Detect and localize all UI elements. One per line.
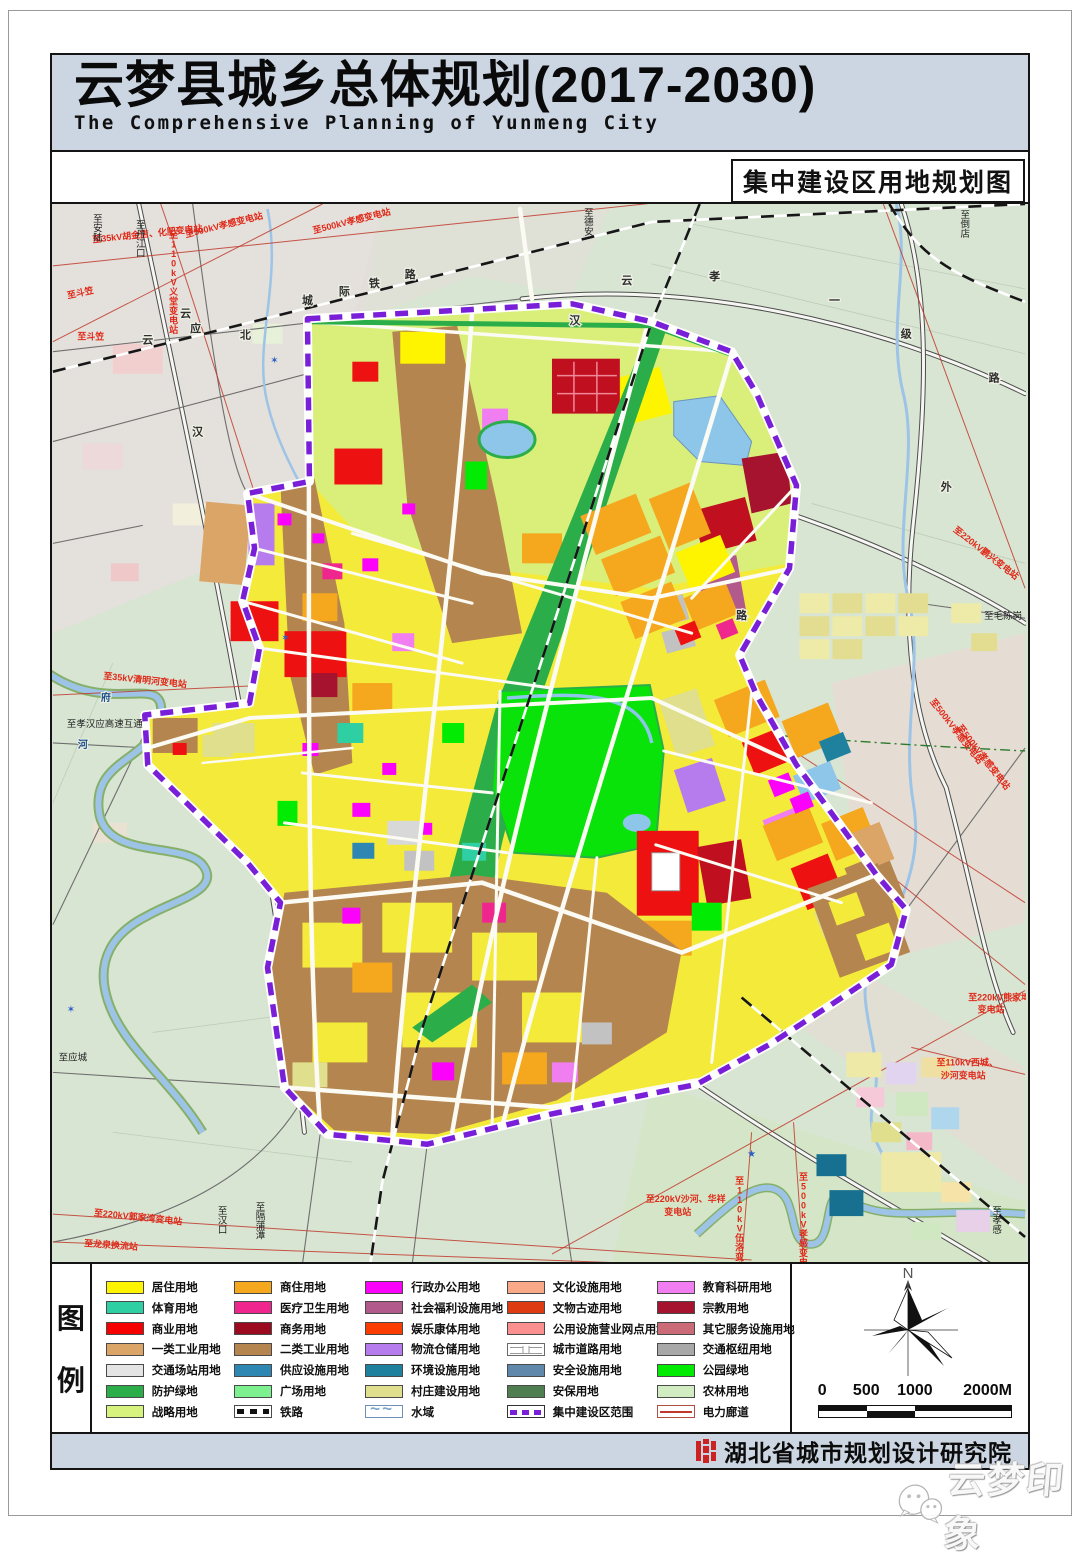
scale-tick: 2000M — [963, 1382, 1012, 1400]
river-name-char: 河 — [78, 739, 88, 751]
legend-label: 水域 — [411, 1404, 434, 1420]
railway-name-char: 应 — [190, 321, 201, 335]
railway-swatch-icon — [234, 1405, 272, 1418]
color-swatch-icon — [234, 1385, 272, 1398]
legend-label: 宗教用地 — [703, 1300, 749, 1316]
legend-item: 村庄建设用地 — [365, 1383, 507, 1399]
legend-label: 商住用地 — [280, 1279, 326, 1295]
color-swatch-icon — [365, 1322, 403, 1335]
legend-item: 医疗卫生用地 — [234, 1300, 365, 1316]
legend-item: 战略用地 — [106, 1404, 234, 1420]
color-swatch-icon — [507, 1385, 545, 1398]
legend-item: 安全设施用地 — [507, 1362, 657, 1378]
destination-label: 至安陆 — [93, 214, 103, 244]
color-swatch-icon — [365, 1343, 403, 1356]
legend-label: 一类工业用地 — [152, 1341, 221, 1357]
watermark-text: 云梦印象 — [941, 1450, 1080, 1558]
legend-label: 物流仓储用地 — [411, 1341, 480, 1357]
railway-name-char: 云 — [142, 334, 153, 347]
legend-label: 村庄建设用地 — [411, 1383, 480, 1399]
legend-item: 商业用地 — [106, 1321, 234, 1337]
legend-label: 商务用地 — [280, 1321, 326, 1337]
legend-title: 图 例 — [52, 1264, 92, 1432]
legend-label: 环境设施用地 — [411, 1362, 480, 1378]
legend-label: 行政办公用地 — [411, 1279, 480, 1295]
legend-item: 公用设施营业网点用地 — [507, 1321, 657, 1337]
color-swatch-icon — [657, 1364, 695, 1377]
north-label: N — [902, 1265, 913, 1282]
map-label-band: 集中建设区用地规划图 — [52, 152, 1028, 202]
legend-item: 公园绿地 — [657, 1362, 786, 1378]
legend-item: 商务用地 — [234, 1321, 365, 1337]
legend-label: 安全设施用地 — [553, 1362, 622, 1378]
page-title: 云梦县城乡总体规划(2017-2030) — [74, 59, 1028, 111]
legend-column: 行政办公用地社会福利设施用地娱乐康体用地物流仓储用地环境设施用地村庄建设用地水域 — [365, 1279, 507, 1420]
road-name-char: 云 — [621, 274, 632, 287]
color-swatch-icon — [507, 1364, 545, 1377]
footer-bar: 湖北省城市规划设计研究院 — [52, 1432, 1028, 1468]
color-swatch-icon — [234, 1343, 272, 1356]
boundary-swatch-icon — [507, 1405, 545, 1418]
legend-title-char-bottom: 例 — [57, 1359, 85, 1399]
legend-label: 集中建设区范围 — [553, 1404, 634, 1420]
color-swatch-icon — [106, 1322, 144, 1335]
color-swatch-icon — [365, 1301, 403, 1314]
legend-label: 医疗卫生用地 — [280, 1300, 349, 1316]
legend-item: 宗教用地 — [657, 1300, 786, 1316]
road-name-char: 云 — [180, 307, 191, 320]
substation-label: 至110kV西城、 — [937, 1056, 998, 1067]
road-name-char: 北 — [240, 328, 251, 342]
color-swatch-icon — [106, 1301, 144, 1314]
legend-item: 社会福利设施用地 — [365, 1300, 507, 1316]
road-name-char: 外 — [940, 479, 952, 493]
legend-item: 其它服务设施用地 — [657, 1321, 786, 1337]
legend-label: 广场用地 — [280, 1383, 326, 1399]
road-name-char: 级 — [900, 327, 912, 341]
railway-name-char: 际 — [339, 284, 350, 298]
legend-label: 公园绿地 — [703, 1362, 749, 1378]
legend-label: 交通场站用地 — [152, 1362, 221, 1378]
legend-label: 农林用地 — [703, 1383, 749, 1399]
legend-item: 娱乐康体用地 — [365, 1321, 507, 1337]
railway-name-char: 铁 — [369, 276, 380, 290]
legend-item: 城市道路用地 — [507, 1341, 657, 1357]
legend-label: 公用设施营业网点用地 — [553, 1321, 668, 1337]
legend-item: 环境设施用地 — [365, 1362, 507, 1378]
page-subtitle: The Comprehensive Planning of Yunmeng Ci… — [74, 112, 1028, 134]
color-swatch-icon — [106, 1364, 144, 1377]
legend-item: 物流仓储用地 — [365, 1341, 507, 1357]
legend-item: 集中建设区范围 — [507, 1404, 657, 1420]
legend-item: 交通场站用地 — [106, 1362, 234, 1378]
legend-title-char-top: 图 — [57, 1297, 85, 1337]
substation-label: 变电站 — [664, 1206, 691, 1217]
legend-label: 娱乐康体用地 — [411, 1321, 480, 1337]
legend-column: 商住用地医疗卫生用地商务用地二类工业用地供应设施用地广场用地铁路 — [234, 1279, 365, 1420]
plan-sheet: 云梦县城乡总体规划(2017-2030) The Comprehensive P… — [50, 53, 1030, 1470]
color-swatch-icon — [106, 1343, 144, 1356]
destination-label: 至德安 — [584, 208, 594, 238]
legend-item: 防护绿地 — [106, 1383, 234, 1399]
destination-label: 至应城 — [59, 1051, 88, 1063]
color-swatch-icon — [106, 1385, 144, 1398]
railway-name-char: 路 — [405, 267, 417, 281]
color-swatch-icon — [106, 1405, 144, 1418]
legend-label: 文化设施用地 — [553, 1279, 622, 1295]
legend-label: 居住用地 — [152, 1279, 198, 1295]
legend-item: 电力廊道 — [657, 1404, 786, 1420]
color-swatch-icon — [234, 1281, 272, 1294]
legend-label: 交通枢纽用地 — [703, 1341, 772, 1357]
color-swatch-icon — [507, 1301, 545, 1314]
legend-label: 文物古迹用地 — [553, 1300, 622, 1316]
map-sheet-label: 集中建设区用地规划图 — [731, 159, 1025, 203]
scale-tick: 500 — [853, 1382, 880, 1400]
legend-label: 体育用地 — [152, 1300, 198, 1316]
color-swatch-icon — [365, 1385, 403, 1398]
scale-tick: 0 — [818, 1382, 827, 1400]
color-swatch-icon — [657, 1343, 695, 1356]
watermark: 云梦印象 — [888, 1450, 1080, 1558]
destination-label: 至隔蒲潭 — [256, 1202, 266, 1241]
legend-item: 行政办公用地 — [365, 1279, 507, 1295]
legend-label: 其它服务设施用地 — [703, 1321, 795, 1337]
legend-label: 铁路 — [280, 1404, 303, 1420]
legend-label: 城市道路用地 — [553, 1341, 622, 1357]
road-name-char: 汉 — [192, 425, 204, 439]
water-swatch-icon — [365, 1405, 403, 1418]
legend-item: 供应设施用地 — [234, 1362, 365, 1378]
road-name-char: 路 — [736, 608, 748, 622]
legend-columns: 居住用地体育用地商业用地一类工业用地交通场站用地防护绿地战略用地商住用地医疗卫生… — [92, 1264, 790, 1432]
substation-label: 变电站 — [978, 1003, 1005, 1014]
destination-label: 至孝汉应高速互通 — [67, 718, 143, 730]
header: 云梦县城乡总体规划(2017-2030) The Comprehensive P… — [52, 55, 1028, 152]
color-swatch-icon — [365, 1281, 403, 1294]
substation-label: 至220kV沙河、华祥 — [646, 1193, 726, 1204]
legend-item: 文物古迹用地 — [507, 1300, 657, 1316]
color-swatch-icon — [234, 1301, 272, 1314]
wechat-icon — [891, 1477, 949, 1531]
planning-map: ✶ ✶ ✶ ★ 至35kV胡金店、化肥变电站至500kV孝感变电站至500kV孝… — [52, 204, 1026, 1262]
legend-label: 防护绿地 — [152, 1383, 198, 1399]
scale-bar-graphic — [818, 1405, 1012, 1418]
road-name-char: 一 — [829, 295, 840, 307]
svg-text:✶: ✶ — [281, 633, 289, 644]
legend-label: 供应设施用地 — [280, 1362, 349, 1378]
legend-label: 战略用地 — [152, 1404, 198, 1420]
scale-bar: 050010002000M — [818, 1382, 1012, 1418]
compass-scale-panel: N 050010002000M — [790, 1264, 1028, 1432]
substation-label: 至220kV熊家塆 — [968, 991, 1026, 1002]
color-swatch-icon — [507, 1322, 545, 1335]
color-swatch-icon — [657, 1322, 695, 1335]
destination-label: 至汉口 — [218, 1206, 228, 1236]
power-swatch-icon — [657, 1405, 695, 1418]
legend-label: 二类工业用地 — [280, 1341, 349, 1357]
legend-item: 二类工业用地 — [234, 1341, 365, 1357]
map-area: ✶ ✶ ✶ ★ 至35kV胡金店、化肥变电站至500kV孝感变电站至500kV孝… — [52, 202, 1028, 1262]
road-swatch-icon — [507, 1343, 545, 1356]
legend-item: 教育科研用地 — [657, 1279, 786, 1295]
institute-logo-icon — [696, 1439, 716, 1463]
legend-column: 居住用地体育用地商业用地一类工业用地交通场站用地防护绿地战略用地 — [106, 1279, 234, 1420]
svg-text:✶: ✶ — [67, 1004, 75, 1015]
legend-item: 农林用地 — [657, 1383, 786, 1399]
legend-item: 体育用地 — [106, 1300, 234, 1316]
destination-label: 至倒店 — [960, 210, 969, 240]
road-name-char: 路 — [989, 371, 1001, 385]
legend-item: 安保用地 — [507, 1383, 657, 1399]
legend: 图 例 居住用地体育用地商业用地一类工业用地交通场站用地防护绿地战略用地商住用地… — [52, 1262, 1028, 1432]
color-swatch-icon — [106, 1281, 144, 1294]
railway-name-char: 城 — [302, 293, 313, 307]
legend-column: 教育科研用地宗教用地其它服务设施用地交通枢纽用地公园绿地农林用地电力廊道 — [657, 1279, 786, 1420]
substation-label: 至斗笠 — [77, 331, 104, 342]
compass-rose: N — [852, 1264, 972, 1382]
color-swatch-icon — [507, 1281, 545, 1294]
destination-label: 至孝感 — [992, 1206, 1002, 1236]
color-swatch-icon — [234, 1322, 272, 1335]
color-swatch-icon — [365, 1364, 403, 1377]
color-swatch-icon — [657, 1301, 695, 1314]
legend-item: 交通枢纽用地 — [657, 1341, 786, 1357]
substation-label: 沙河变电站 — [941, 1069, 986, 1080]
legend-item: 商住用地 — [234, 1279, 365, 1295]
legend-item: 居住用地 — [106, 1279, 234, 1295]
scale-tick: 1000 — [897, 1382, 933, 1400]
road-name-char: 汉 — [569, 313, 581, 327]
legend-label: 安保用地 — [553, 1383, 599, 1399]
color-swatch-icon — [657, 1281, 695, 1294]
road-name-char: 孝 — [708, 269, 720, 283]
color-swatch-icon — [234, 1364, 272, 1377]
color-swatch-icon — [657, 1385, 695, 1398]
legend-column: 文化设施用地文物古迹用地公用设施营业网点用地城市道路用地安全设施用地安保用地集中… — [507, 1279, 657, 1420]
legend-item: 一类工业用地 — [106, 1341, 234, 1357]
svg-text:★: ★ — [747, 1149, 756, 1160]
river-name-char: 府 — [101, 691, 111, 704]
legend-item: 广场用地 — [234, 1383, 365, 1399]
destination-label: 至毛陈岗 — [984, 610, 1022, 622]
legend-label: 教育科研用地 — [703, 1279, 772, 1295]
legend-item: 文化设施用地 — [507, 1279, 657, 1295]
legend-item: 铁路 — [234, 1404, 365, 1420]
legend-item: 水域 — [365, 1404, 507, 1420]
legend-label: 商业用地 — [152, 1321, 198, 1337]
legend-label: 电力廊道 — [703, 1404, 749, 1420]
legend-label: 社会福利设施用地 — [411, 1300, 503, 1316]
destination-label: 至丹江口 — [136, 220, 146, 259]
svg-text:✶: ✶ — [270, 356, 278, 367]
